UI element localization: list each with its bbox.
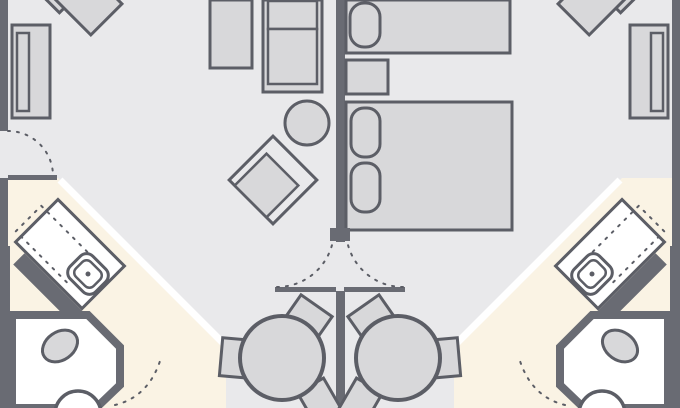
- connecting-door-leaf: [8, 175, 57, 180]
- dining-table: [240, 316, 324, 400]
- side-chair: [210, 0, 252, 68]
- left-wall-lower: [0, 246, 10, 408]
- entry-door-leaf-mirrored: [344, 287, 405, 292]
- side-table: [285, 101, 329, 145]
- center-wall-lower: [336, 291, 345, 408]
- sink-drain-mirror: [590, 272, 595, 277]
- entry-door-leaf: [275, 287, 336, 292]
- sofa-cushion-bottom: [268, 29, 317, 84]
- right-wall-lower: [670, 246, 680, 408]
- left-wall-upper: [0, 0, 8, 131]
- floor-plan-svg: [0, 0, 680, 408]
- right-wall-upper: [672, 0, 680, 246]
- double-bed-pillow-1: [351, 108, 380, 157]
- double-bed-pillow-2: [351, 163, 380, 212]
- dining-table-mirrored: [356, 316, 440, 400]
- entry-door-jamb-mirror: [336, 228, 350, 241]
- dining-table-mirror: [356, 316, 440, 400]
- sink-drain: [86, 272, 91, 277]
- entry-door-leaf-mirror: [344, 287, 405, 292]
- nightstand: [346, 60, 388, 94]
- center-wall-upper: [336, 0, 345, 242]
- twin-bed-pillow: [350, 3, 380, 47]
- left-wall-mid: [0, 178, 8, 248]
- entry-door-jamb-mirrored: [336, 228, 350, 241]
- sofa-cushion-top: [268, 1, 317, 29]
- sink-drain-mirrored: [590, 272, 595, 277]
- floor-plan: [0, 0, 680, 408]
